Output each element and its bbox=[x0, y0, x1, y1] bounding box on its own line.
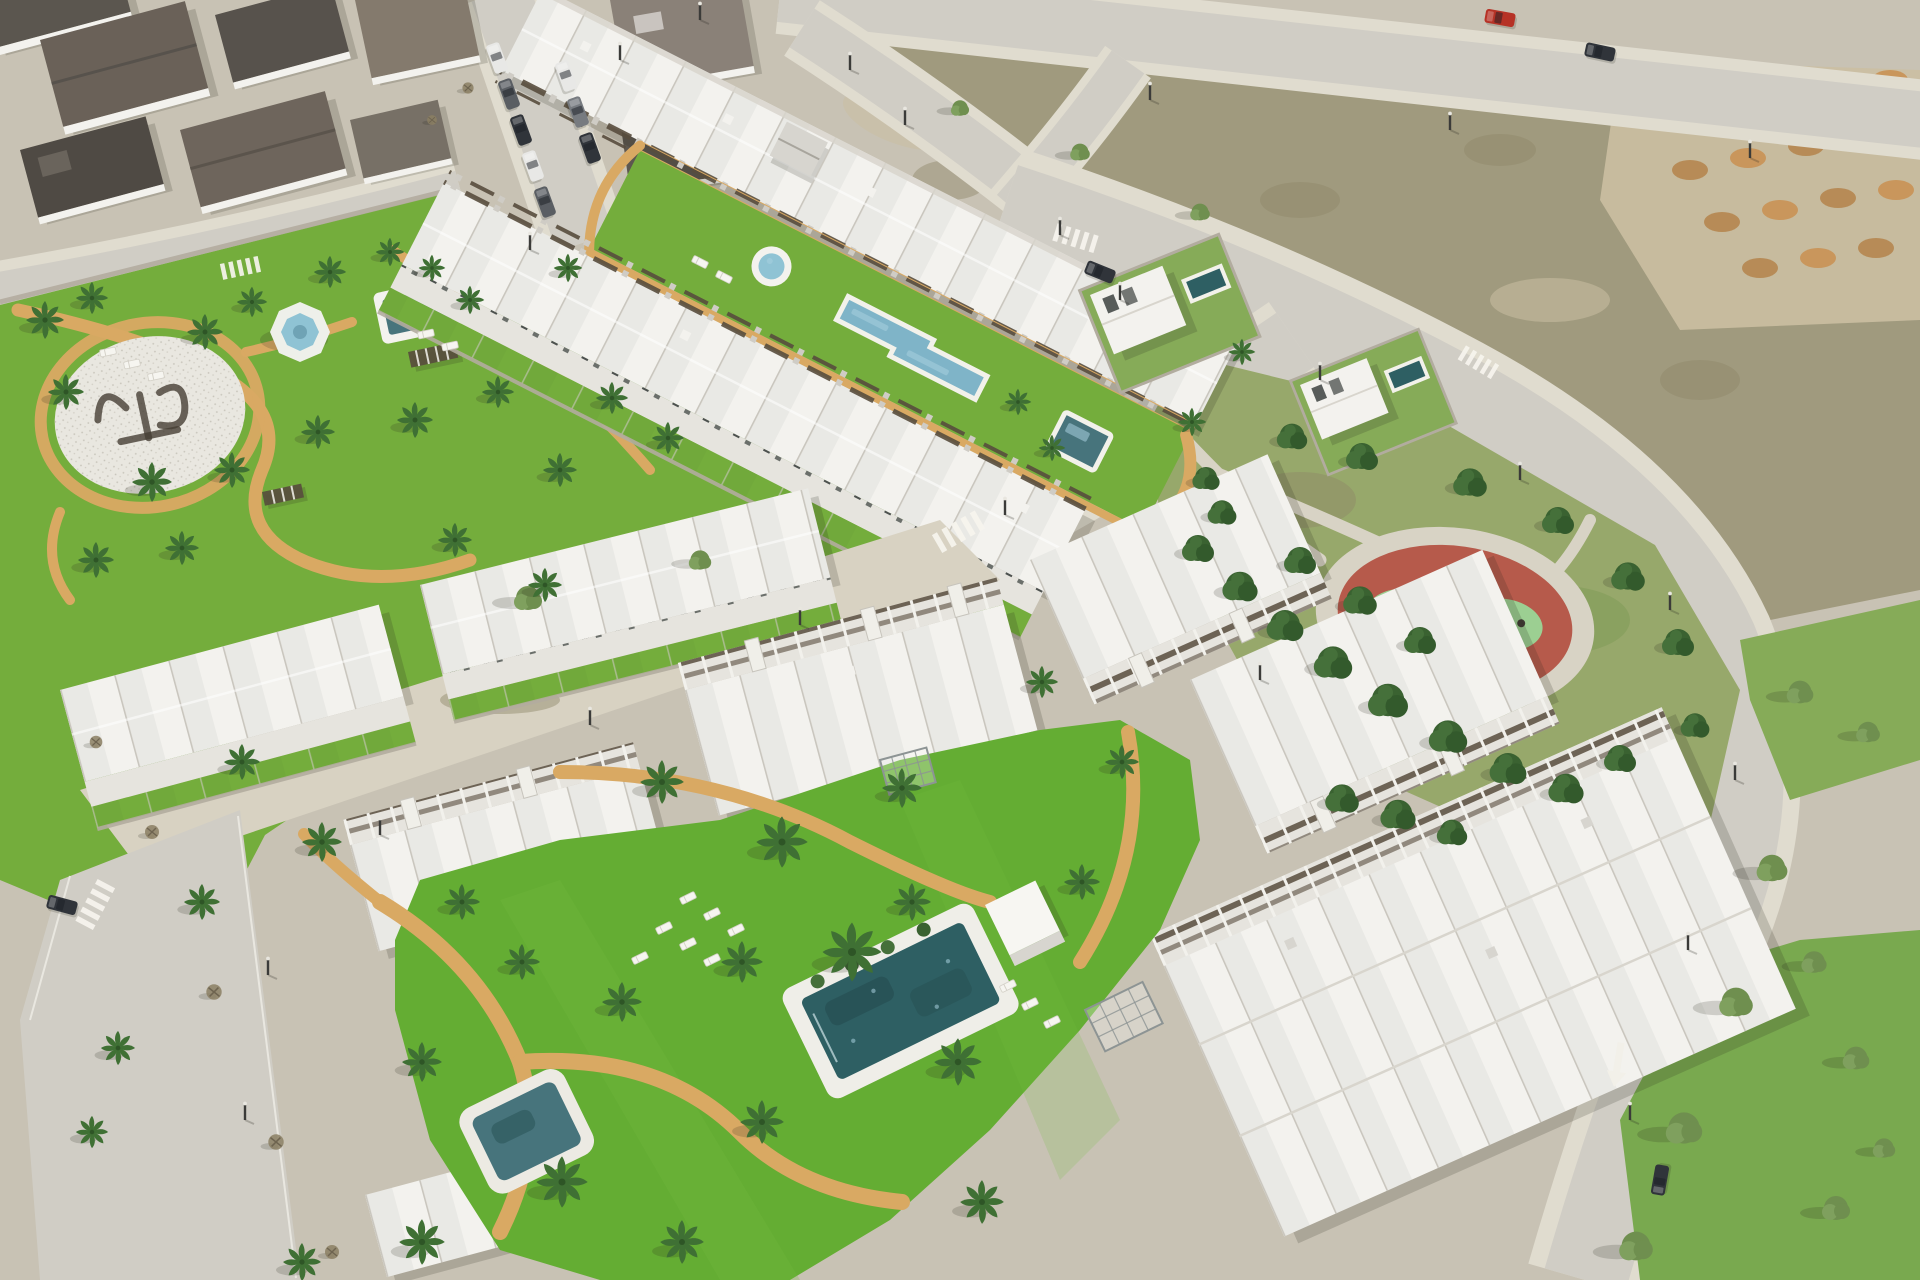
aerial-site-render-svg: Aerial 3D architectural render of a coas… bbox=[0, 0, 1920, 1280]
aerial-site-render: Aerial 3D architectural render of a coas… bbox=[0, 0, 1920, 1280]
